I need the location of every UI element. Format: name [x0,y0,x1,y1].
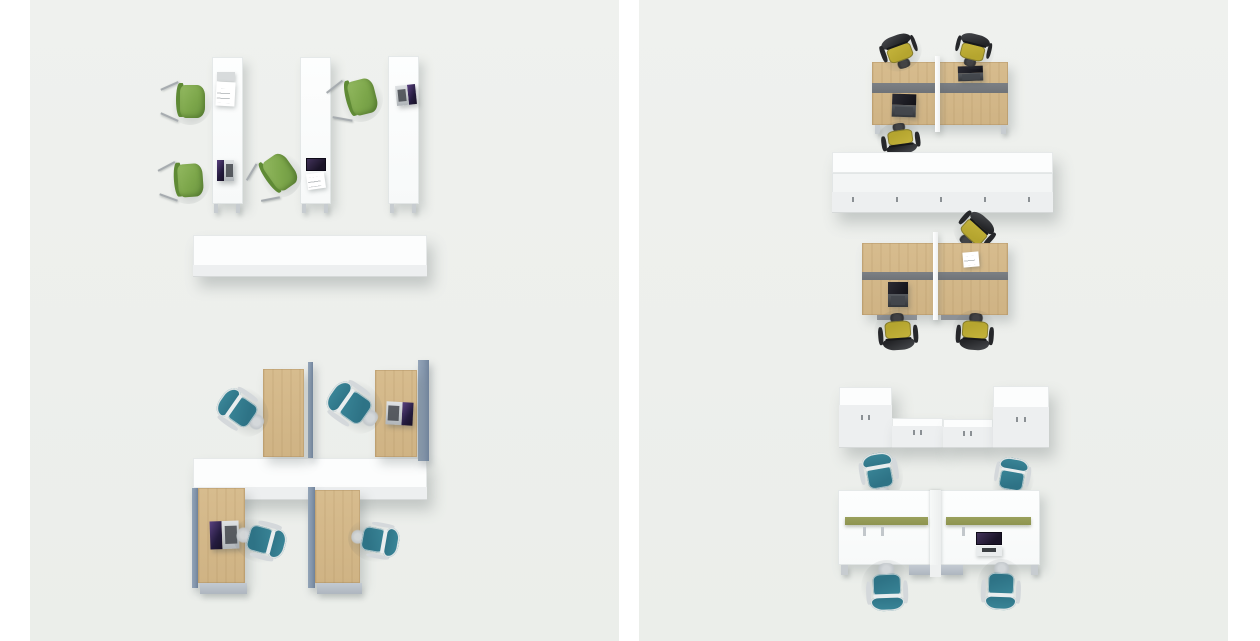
laptop-screen [210,521,223,549]
scene-oak-desks-teal-chairs [30,0,619,641]
laptop [385,401,413,425]
olive-divider-rail [946,517,1031,525]
furniture-catalog-collage [0,0,1260,641]
laptop-keyboard [385,401,402,425]
center-divider-screens [930,490,941,565]
desk-base [317,583,362,594]
panel-left-office-layout [30,0,619,641]
desk-pedestal [941,565,963,575]
oak-desk [263,369,304,457]
center-base [930,565,941,577]
desk-leg [1031,565,1038,575]
keyboard [982,548,996,552]
teal-task-chair [350,519,401,560]
desk-accessory [863,527,866,536]
teal-task-chair [866,564,908,611]
desk-base [200,583,247,594]
cabinet-top [193,458,427,488]
panel-right-office-layout [639,0,1228,641]
desk-leg [841,565,848,575]
scene-white-bench-cluster-bottom [639,0,1228,641]
divider-screen [308,487,315,588]
monitor-screen [976,532,1002,545]
desktop-monitor [976,532,1002,556]
divider-screen [418,360,429,461]
olive-divider-rail [845,517,928,525]
teal-task-chair [981,563,1021,610]
desk-accessory [881,527,884,536]
desk-accessory [962,527,965,536]
desk-pedestal [909,565,930,575]
divider-screen [308,362,313,458]
laptop-screen [401,402,414,426]
